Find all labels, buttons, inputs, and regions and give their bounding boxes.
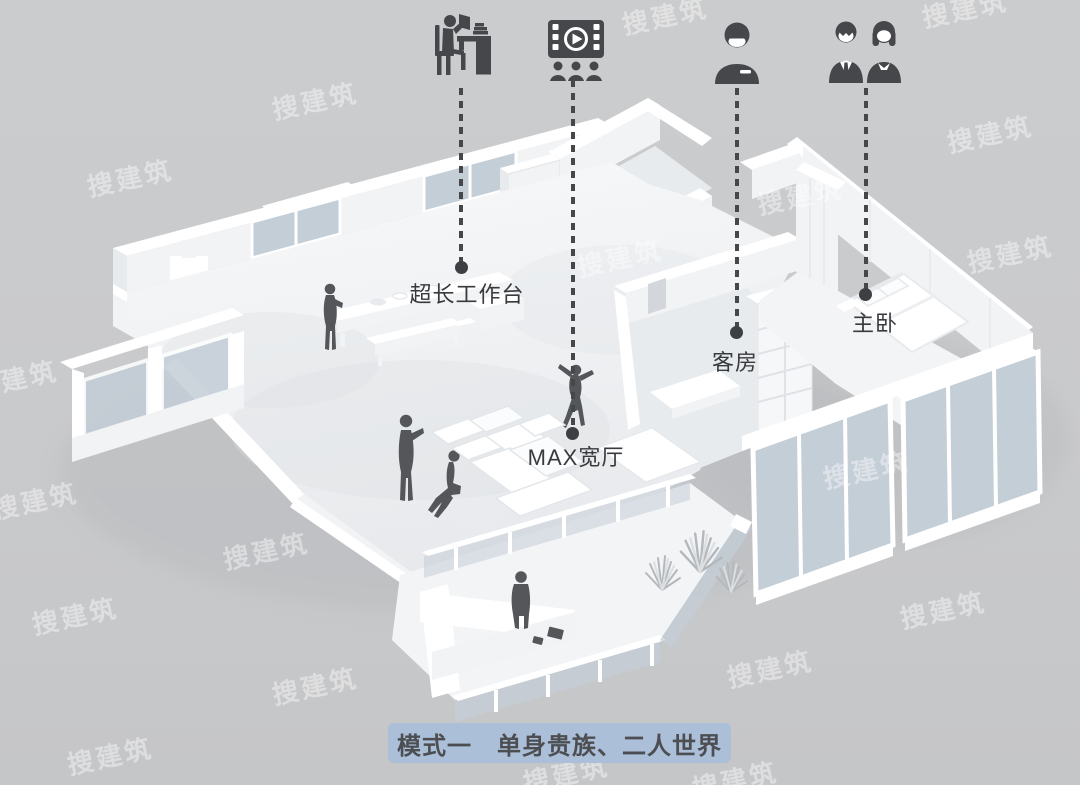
leader-line-guest-room [735,88,739,327]
anchor-dot-max-hall [566,427,579,440]
leader-line-worktable [459,88,463,262]
home-cinema-icon [541,17,611,83]
anchor-dot-master-bedroom [859,288,872,301]
caption-badge: 模式一 单身贵族、二人世界 [388,723,731,763]
couple-icon [828,19,904,85]
floorplan-3d [0,0,1080,785]
work-desk-icon [429,13,499,79]
label-master-bedroom: 主卧 [852,306,898,338]
leader-line-master-bedroom [864,88,868,289]
leader-line-max-hall [571,80,575,428]
anchor-dot-guest-room [730,326,743,339]
label-guest-room: 客房 [712,345,758,377]
anchor-dot-worktable [455,261,468,274]
label-max-hall: MAX宽厅 [528,440,625,472]
label-worktable: 超长工作台 [409,277,524,309]
single-person-icon [702,20,772,86]
infographic-stage: 搜建筑搜建筑搜建筑搜建筑搜建筑搜建筑搜建筑搜建筑搜建筑搜建筑搜建筑搜建筑搜建筑搜… [0,0,1080,785]
